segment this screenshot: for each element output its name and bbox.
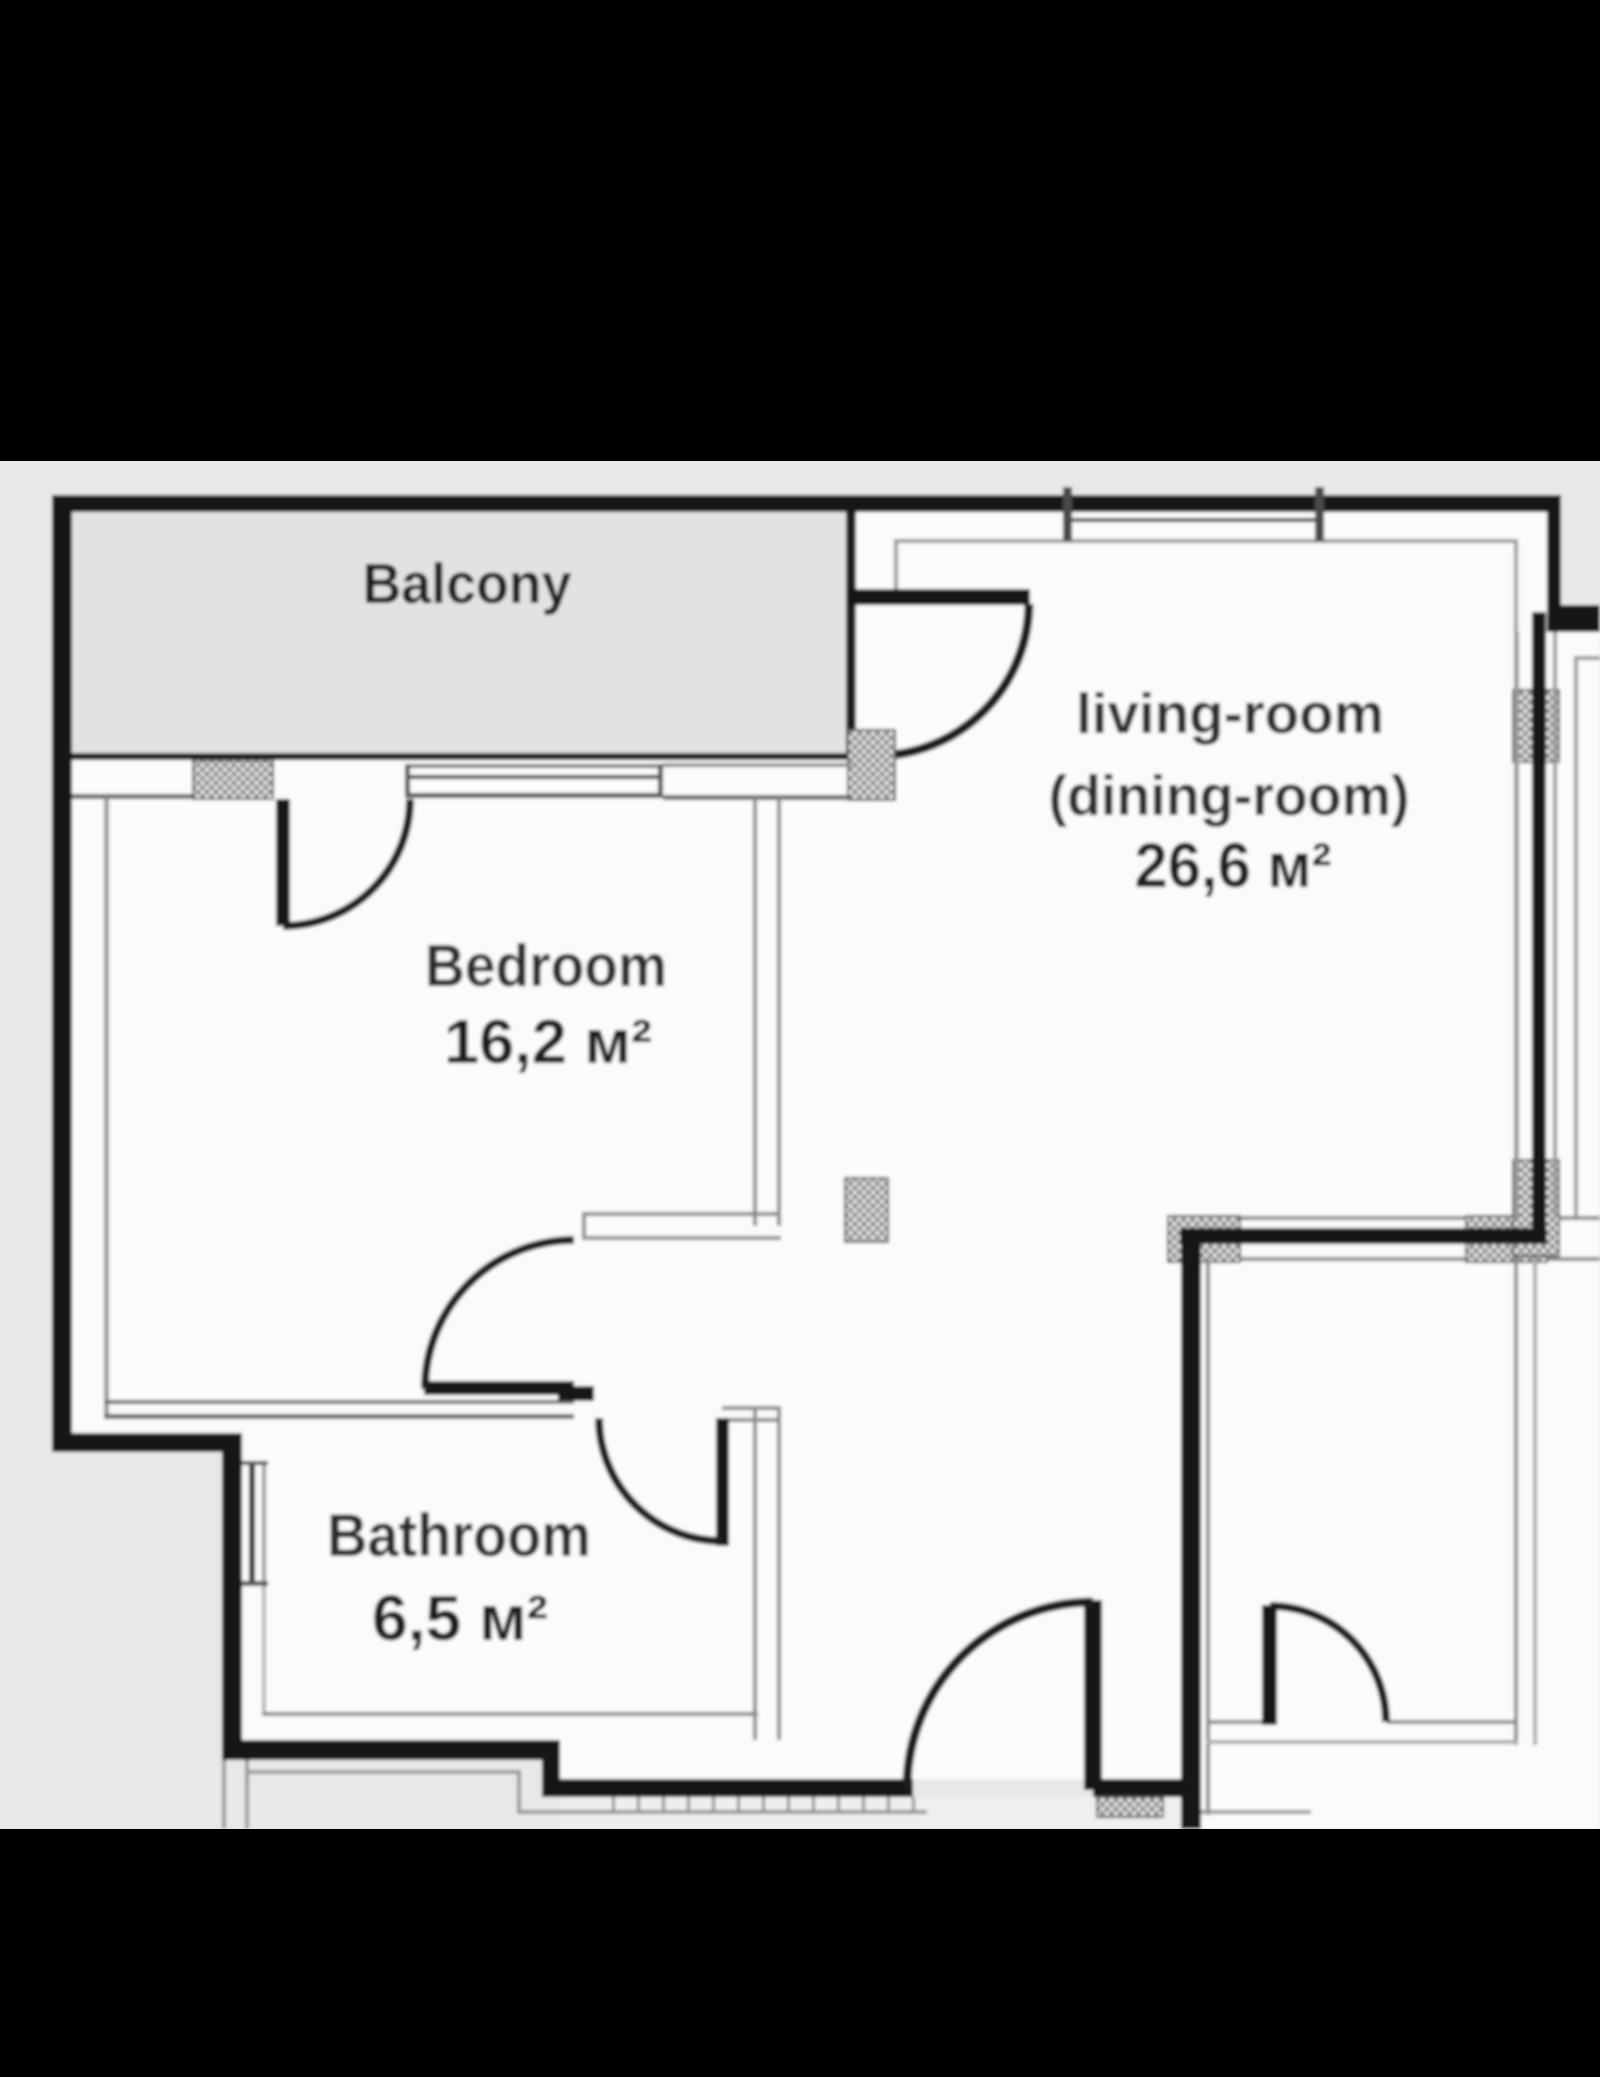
- svg-text:Bathroom: Bathroom: [327, 1502, 591, 1569]
- svg-text:living-room: living-room: [1076, 682, 1384, 746]
- svg-text:6,5 м²: 6,5 м²: [372, 1582, 548, 1654]
- svg-text:(dining-room): (dining-room): [1049, 764, 1410, 828]
- svg-text:16,2 м²: 16,2 м²: [444, 1008, 652, 1077]
- svg-text:26,6 м²: 26,6 м²: [1135, 831, 1332, 901]
- svg-text:Bedroom: Bedroom: [425, 933, 667, 999]
- svg-text:Balcony: Balcony: [363, 552, 572, 616]
